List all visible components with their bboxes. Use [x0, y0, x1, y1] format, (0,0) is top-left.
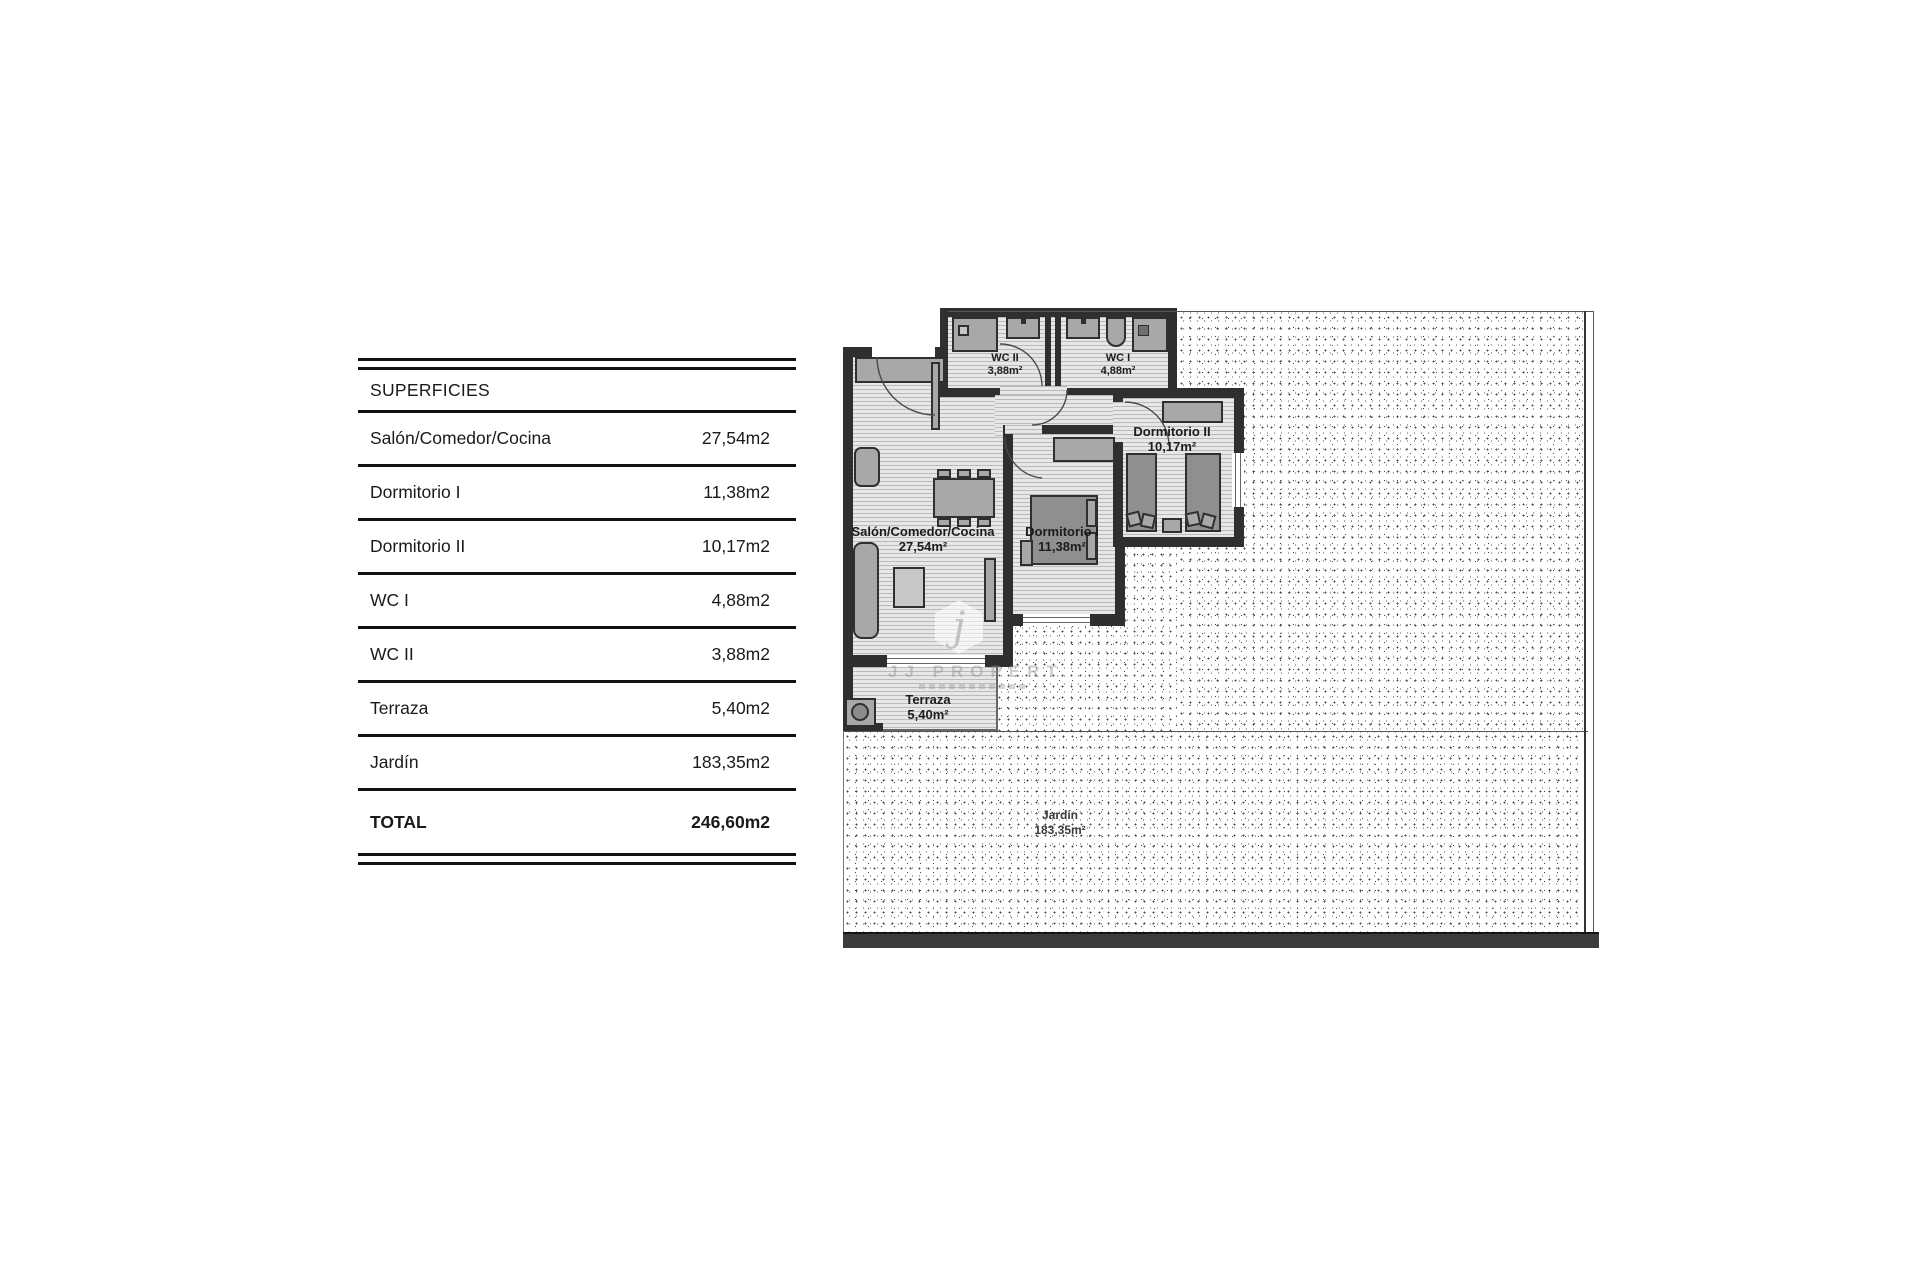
- surface-rows: Salón/Comedor/Cocina 27,54m2 Dormitorio …: [358, 413, 796, 791]
- table-row: Dormitorio I 11,38m2: [358, 467, 796, 521]
- surface-value: 4,88m2: [712, 590, 770, 611]
- wc-separator-wall2: [1055, 308, 1061, 397]
- table-row: Dormitorio II 10,17m2: [358, 521, 796, 575]
- plot-left-line: [843, 731, 844, 932]
- toilet-symbol: [1106, 317, 1126, 347]
- table-header: SUPERFICIES: [358, 370, 796, 413]
- pillow-symbol: [1140, 513, 1157, 530]
- dorm1-window: [1023, 614, 1090, 626]
- dorm1-door-gap: [1005, 425, 1042, 434]
- dorm2-door-gap: [1113, 402, 1123, 442]
- washer-drum-icon: [851, 703, 869, 721]
- wardrobe-symbol: [1053, 437, 1115, 462]
- plot-right-line-outer: [1593, 311, 1594, 948]
- wc-separator-wall: [1045, 308, 1051, 397]
- garden-divider-line: [843, 731, 1588, 732]
- plot-bottom-bar: [843, 932, 1599, 948]
- surface-value: 10,17m2: [702, 536, 770, 557]
- table-total-row: TOTAL 246,60m2: [358, 791, 796, 853]
- label-jardin: Jardín 183,35m²: [1034, 808, 1085, 838]
- dining-table-symbol: [933, 478, 995, 518]
- label-wc2: WC II 3,88m²: [988, 352, 1023, 378]
- label-terraza: Terraza 5,40m²: [905, 692, 950, 722]
- pillow-symbol: [1086, 499, 1097, 527]
- table-row: Terraza 5,40m2: [358, 683, 796, 737]
- room-area: 183,35m²: [1034, 823, 1085, 838]
- dining-chair-symbol: [937, 469, 951, 478]
- wc1-door-gap: [1032, 386, 1067, 395]
- floorplan-page: SUPERFICIES Salón/Comedor/Cocina 27,54m2…: [0, 0, 1920, 1280]
- sink-tap-icon: [1081, 319, 1086, 324]
- label-dorm2: Dormitorio II 10,17m²: [1133, 424, 1210, 454]
- room-name: WC II: [988, 352, 1023, 365]
- watermark-initial: j: [953, 604, 965, 650]
- label-salon: Salón/Comedor/Cocina 27,54m²: [851, 524, 994, 554]
- entrance-door-gap: [872, 347, 935, 357]
- surface-label: WC I: [370, 590, 409, 611]
- room-name: Jardín: [1034, 808, 1085, 823]
- room-area: 5,40m²: [905, 707, 950, 722]
- room-name: Dormitorio II: [1133, 424, 1210, 439]
- watermark-subtext-strip: [919, 684, 1027, 689]
- table-row: WC I 4,88m2: [358, 575, 796, 629]
- tall-cabinet-symbol: [931, 362, 940, 430]
- total-value: 246,60m2: [691, 812, 770, 833]
- dorm2-window: [1232, 453, 1244, 507]
- label-wc1: WC I 4,88m²: [1101, 352, 1136, 378]
- sofa-symbol: [853, 542, 879, 639]
- table-bottom-rule: [358, 853, 796, 865]
- table-top-rule: [358, 358, 796, 370]
- surface-label: Salón/Comedor/Cocina: [370, 428, 551, 449]
- surface-label: Jardín: [370, 752, 419, 773]
- total-label: TOTAL: [370, 812, 427, 833]
- wardrobe-symbol: [1162, 401, 1223, 423]
- watermark-text: JJ PROPERTI: [888, 662, 1058, 682]
- tv-bench-symbol: [984, 558, 996, 622]
- room-name: WC I: [1101, 352, 1136, 365]
- coffee-table-symbol: [893, 567, 925, 608]
- plot-right-line-inner: [1584, 311, 1586, 932]
- room-area: 3,88m²: [988, 365, 1023, 378]
- nightstand-symbol: [1162, 518, 1182, 533]
- surface-value: 3,88m2: [712, 644, 770, 665]
- surface-value: 11,38m2: [703, 482, 770, 503]
- surface-value: 27,54m2: [702, 428, 770, 449]
- surface-value: 5,40m2: [712, 698, 770, 719]
- table-row: Jardín 183,35m2: [358, 737, 796, 791]
- surface-label: Dormitorio II: [370, 536, 465, 557]
- room-name: Dormitorio I: [1025, 524, 1099, 539]
- surface-label: Terraza: [370, 698, 428, 719]
- armchair-symbol: [854, 447, 880, 487]
- surface-label: Dormitorio I: [370, 482, 460, 503]
- table-row: Salón/Comedor/Cocina 27,54m2: [358, 413, 796, 467]
- table-row: WC II 3,88m2: [358, 629, 796, 683]
- dining-chair-symbol: [977, 469, 991, 478]
- label-dorm1: Dormitorio I 11,38m²: [1025, 524, 1099, 554]
- sink-tap-icon: [1021, 319, 1026, 324]
- room-name: Salón/Comedor/Cocina: [851, 524, 994, 539]
- room-area: 11,38m²: [1025, 539, 1099, 554]
- room-area: 4,88m²: [1101, 365, 1136, 378]
- room-area: 27,54m²: [851, 539, 994, 554]
- shower-drain-symbol: [1138, 325, 1149, 336]
- room-area: 10,17m²: [1133, 439, 1210, 454]
- surface-value: 183,35m2: [692, 752, 770, 773]
- dining-chair-symbol: [957, 469, 971, 478]
- surfaces-table: SUPERFICIES Salón/Comedor/Cocina 27,54m2…: [358, 358, 796, 865]
- garden-area-bottom: [843, 731, 1583, 932]
- shower-drain-symbol: [958, 325, 969, 336]
- surface-label: WC II: [370, 644, 414, 665]
- floor-plan: WC II 3,88m² WC I 4,88m² Dormitorio II 1…: [843, 306, 1599, 951]
- room-name: Terraza: [905, 692, 950, 707]
- plot-top-line: [948, 311, 1593, 312]
